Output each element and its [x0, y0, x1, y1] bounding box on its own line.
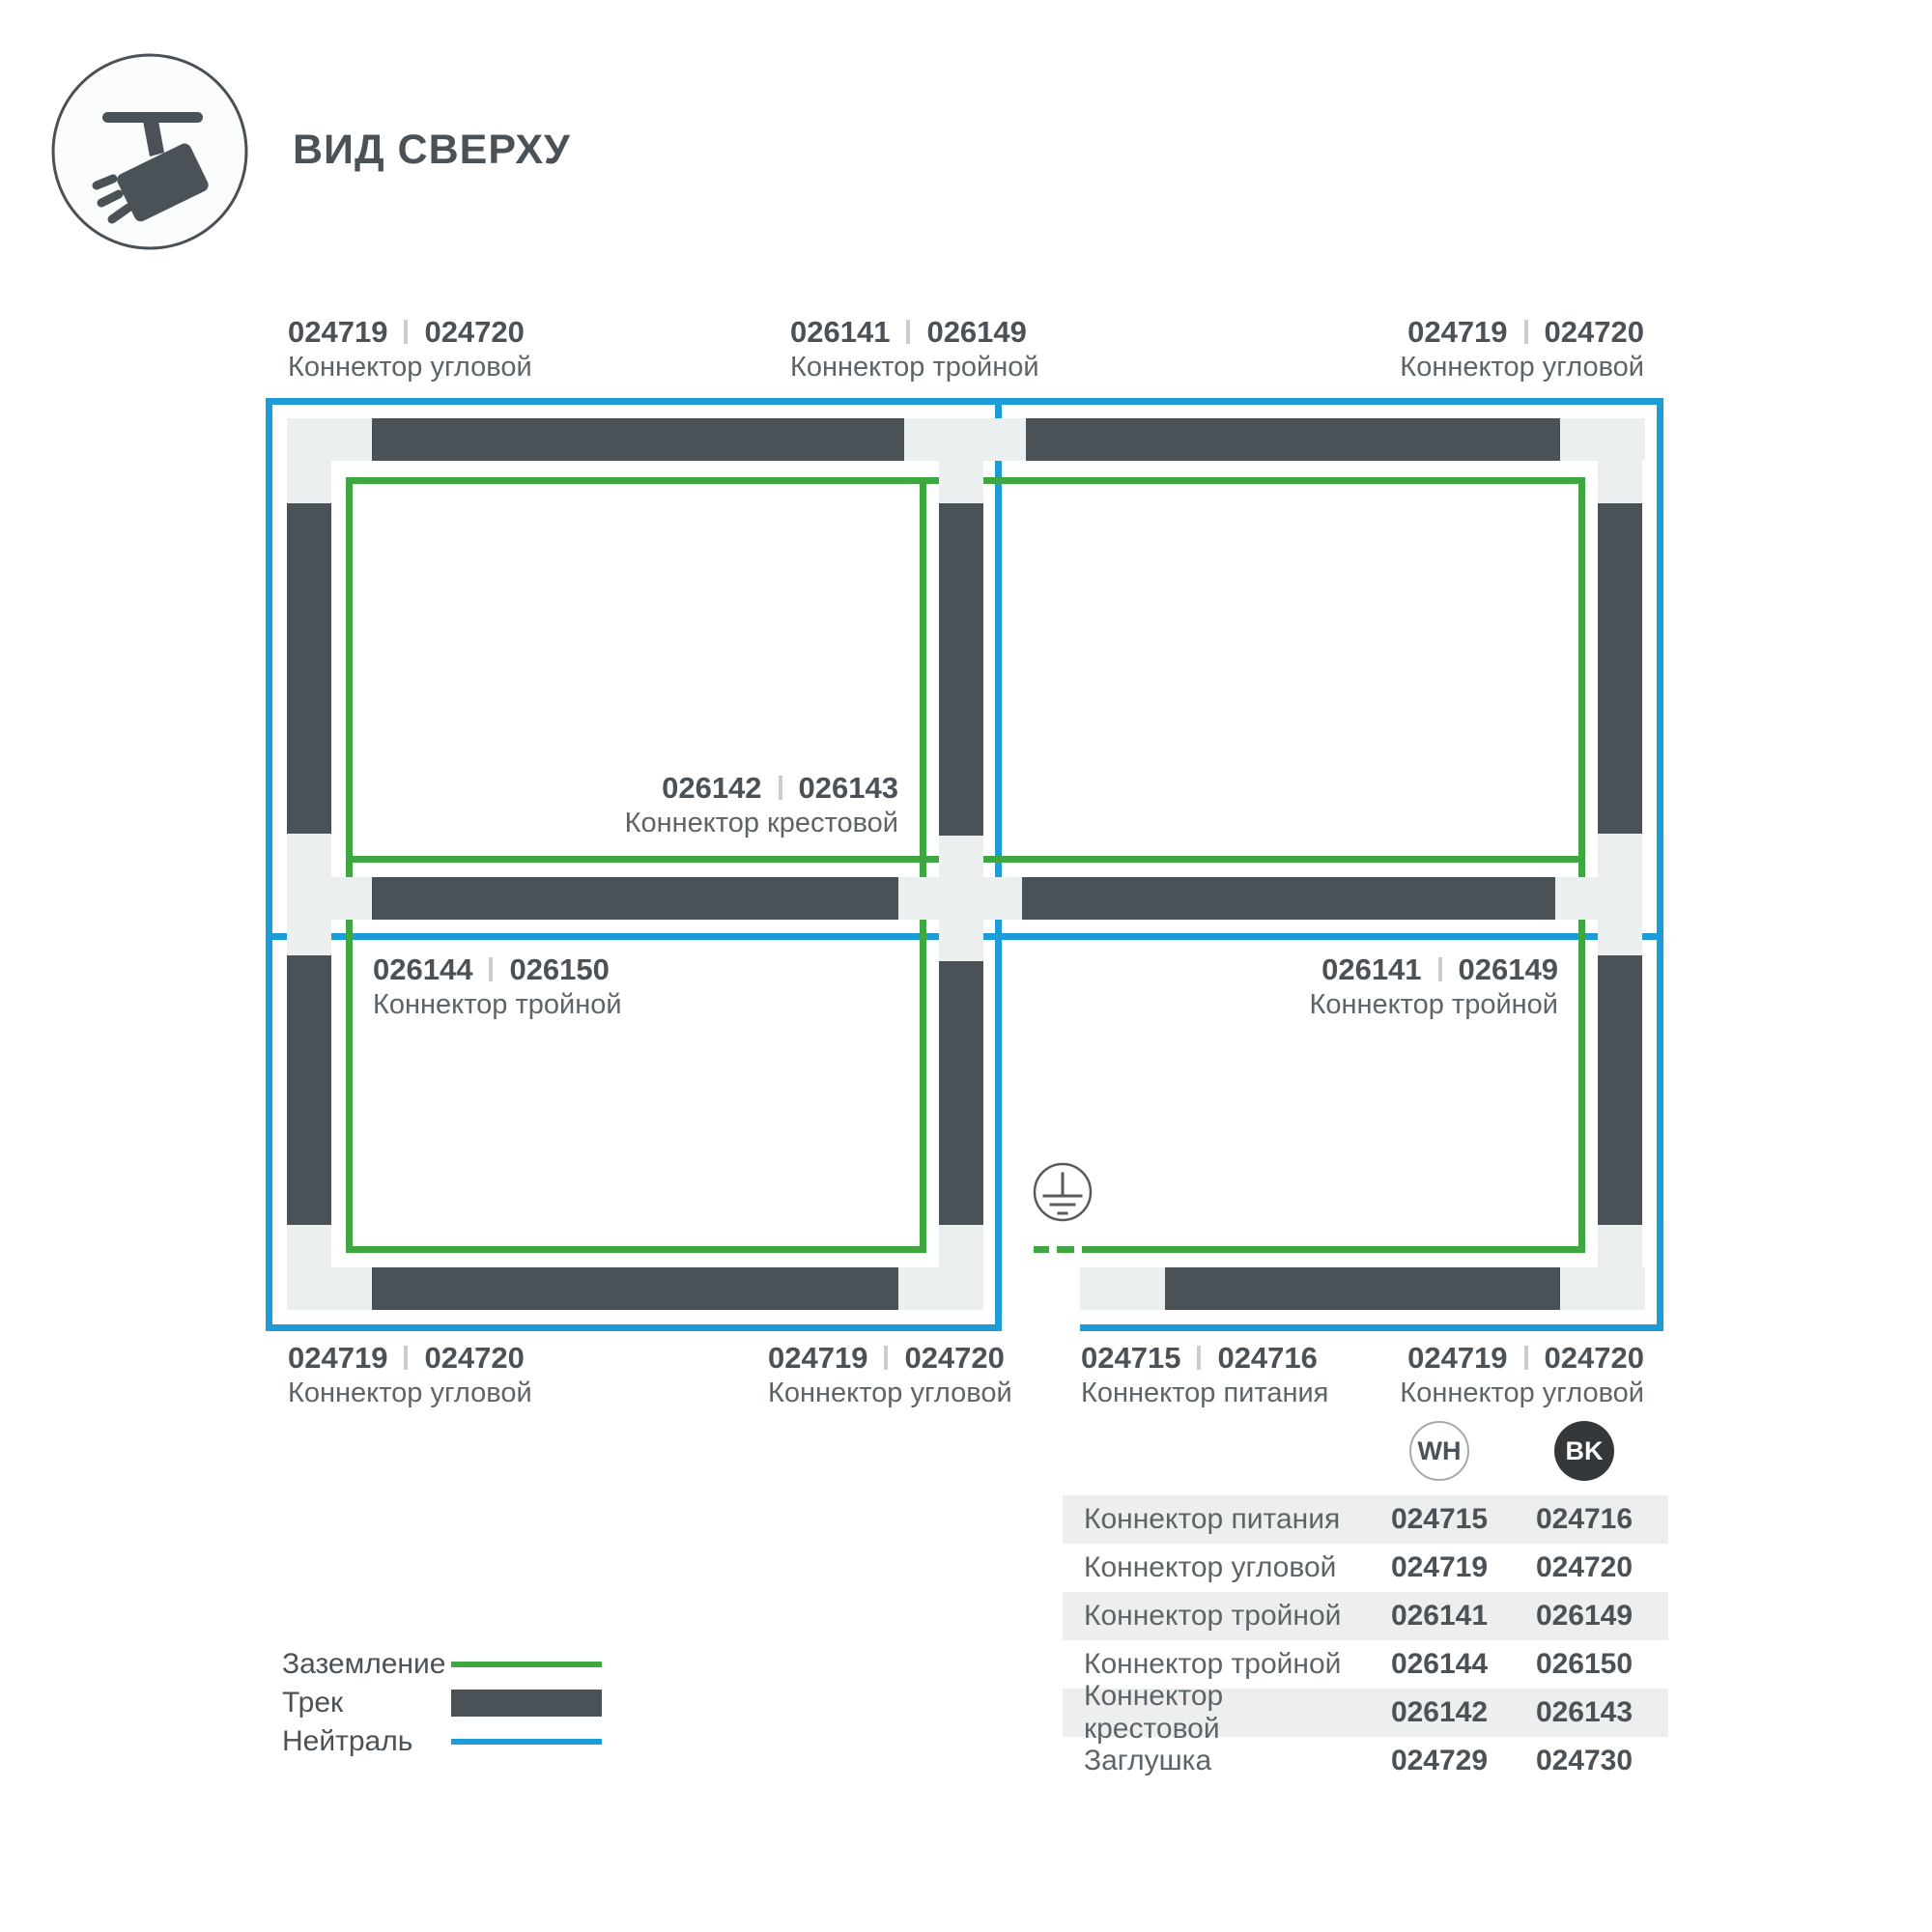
table-row: Заглушка 024729 024730: [1063, 1737, 1668, 1785]
track-segment: [372, 1267, 898, 1310]
part-code-bk: 024730: [1512, 1745, 1657, 1777]
part-codes: 024719024720: [1400, 1341, 1644, 1376]
part-codes: 026144026150: [373, 952, 622, 987]
part-name: Коннектор крестовой: [1063, 1680, 1367, 1746]
track-segment: [1598, 955, 1642, 1225]
connector-label-mid-right: 026141026149 Коннектор тройной: [1309, 952, 1558, 1022]
part-code-wh: 024715: [1367, 1503, 1512, 1536]
ground-line: [346, 1246, 926, 1253]
catalog-diagram-page: ВИД СВЕРХУ: [0, 0, 1932, 1932]
connector-label-bottom-left: 024719024720 Коннектор угловой: [288, 1341, 532, 1410]
legend-item-neutral: Нейтраль: [282, 1722, 602, 1761]
color-badge-bk: BK: [1554, 1421, 1614, 1481]
connector-label-center-cross: 026142026143 Коннектор крестовой: [625, 771, 898, 840]
part-code-wh: 024719: [1367, 1551, 1512, 1584]
track-segment: [939, 961, 983, 1225]
code-separator: [404, 1346, 408, 1370]
table-row: Коннектор тройной 026141 026149: [1063, 1592, 1668, 1640]
part-name: Коннектор тройной: [1063, 1648, 1367, 1681]
connector-name: Коннектор угловой: [1400, 1377, 1644, 1410]
connector-name: Коннектор угловой: [1400, 351, 1644, 384]
connector-name: Коннектор тройной: [373, 988, 622, 1022]
part-code-wh: 026144: [1367, 1648, 1512, 1681]
t-connector-piece: [939, 418, 983, 503]
part-name: Коннектор тройной: [1063, 1600, 1367, 1633]
part-name: Коннектор угловой: [1063, 1551, 1367, 1584]
corner-connector-piece: [1598, 418, 1642, 503]
corner-connector-piece: [1560, 1267, 1645, 1310]
earth-ground-icon: [1032, 1161, 1094, 1223]
connector-name: Коннектор тройной: [790, 351, 1039, 384]
ground-line-swatch: [451, 1662, 602, 1667]
connector-name: Коннектор угловой: [288, 351, 532, 384]
track-segment: [287, 503, 331, 834]
t-connector-piece: [1555, 877, 1642, 920]
part-name: Коннектор питания: [1063, 1503, 1367, 1536]
code-separator: [1524, 1346, 1528, 1370]
part-codes: 024719024720: [768, 1341, 1012, 1376]
track-segment: [287, 955, 331, 1225]
neutral-line: [266, 398, 1663, 405]
code-separator: [1438, 957, 1442, 981]
code-separator: [1197, 1346, 1201, 1370]
part-code-bk: 024720: [1512, 1551, 1657, 1584]
part-codes: 024719024720: [288, 315, 532, 350]
code-separator: [779, 776, 782, 800]
track-segment: [372, 418, 904, 461]
code-separator: [884, 1346, 888, 1370]
ground-line-dash: [1034, 1246, 1049, 1253]
part-codes: 024719024720: [288, 1341, 532, 1376]
page-title: ВИД СВЕРХУ: [293, 127, 571, 174]
connector-label-top-right: 024719024720 Коннектор угловой: [1400, 315, 1644, 384]
part-name: Заглушка: [1063, 1745, 1367, 1777]
track-segment: [1022, 877, 1555, 920]
track-segment: [939, 503, 983, 836]
ground-line: [920, 477, 926, 1253]
legend-item-ground: Заземление: [282, 1645, 602, 1684]
color-badge-wh: WH: [1409, 1421, 1469, 1481]
connector-label-bottom-right: 024719024720 Коннектор угловой: [1400, 1341, 1644, 1410]
track-segment: [1026, 418, 1560, 461]
part-codes: 026141026149: [1309, 952, 1558, 987]
legend-label: Заземление: [282, 1648, 451, 1681]
part-codes: 024715024716: [1081, 1341, 1328, 1376]
part-code-wh: 026142: [1367, 1696, 1512, 1729]
connector-label-top-center: 026141026149 Коннектор тройной: [790, 315, 1039, 384]
neutral-line: [995, 398, 1002, 1331]
part-code-bk: 026143: [1512, 1696, 1657, 1729]
ground-line: [1082, 1246, 1585, 1253]
part-code-wh: 024729: [1367, 1745, 1512, 1777]
ground-line-dash: [1057, 1246, 1074, 1253]
part-code-bk: 024716: [1512, 1503, 1657, 1536]
table-row: Коннектор крестовой 026142 026143: [1063, 1689, 1668, 1737]
table-row: Коннектор угловой 024719 024720: [1063, 1544, 1668, 1592]
neutral-line-swatch: [451, 1739, 602, 1745]
ground-line: [1578, 477, 1585, 1253]
track-segment: [1165, 1267, 1560, 1310]
code-separator: [1524, 320, 1528, 344]
legend-item-track: Трек: [282, 1684, 602, 1722]
connector-name: Коннектор угловой: [288, 1377, 532, 1410]
t-connector-piece: [287, 877, 372, 920]
part-codes: 026141026149: [790, 315, 1039, 350]
connector-label-power-feed: 024715024716 Коннектор питания: [1081, 1341, 1328, 1410]
connector-name: Коннектор питания: [1081, 1377, 1328, 1410]
neutral-line: [266, 1324, 1002, 1331]
cross-connector-piece: [939, 836, 983, 961]
neutral-line: [266, 398, 272, 1331]
parts-table: Коннектор питания 024715 024716 Коннекто…: [1063, 1495, 1668, 1785]
legend-label: Трек: [282, 1687, 451, 1719]
legend-label: Нейтраль: [282, 1725, 451, 1758]
track-segment: [1598, 503, 1642, 834]
track-bar-swatch: [451, 1690, 602, 1717]
code-separator: [404, 320, 408, 344]
part-codes: 026142026143: [625, 771, 898, 806]
connector-label-mid-left: 026144026150 Коннектор тройной: [373, 952, 622, 1022]
connector-name: Коннектор угловой: [768, 1377, 1012, 1410]
part-code-wh: 026141: [1367, 1600, 1512, 1633]
connector-name: Коннектор крестовой: [625, 807, 898, 840]
code-separator: [489, 957, 493, 981]
part-codes: 024719024720: [1400, 315, 1644, 350]
connector-label-top-left: 024719024720 Коннектор угловой: [288, 315, 532, 384]
corner-connector-piece: [898, 1267, 983, 1310]
ground-line: [346, 477, 353, 1253]
table-row: Коннектор питания 024715 024716: [1063, 1495, 1668, 1544]
power-feed-connector-piece: [1080, 1267, 1165, 1310]
neutral-line: [1080, 1324, 1663, 1331]
connector-label-bottom-center: 024719024720 Коннектор угловой: [768, 1341, 1012, 1410]
neutral-line: [1657, 398, 1663, 1331]
track-spotlight-icon: [50, 52, 249, 251]
connector-name: Коннектор тройной: [1309, 988, 1558, 1022]
track-segment: [372, 877, 898, 920]
code-separator: [906, 320, 910, 344]
part-code-bk: 026149: [1512, 1600, 1657, 1633]
part-code-bk: 026150: [1512, 1648, 1657, 1681]
corner-connector-piece: [287, 1267, 372, 1310]
corner-connector-piece: [287, 418, 331, 503]
